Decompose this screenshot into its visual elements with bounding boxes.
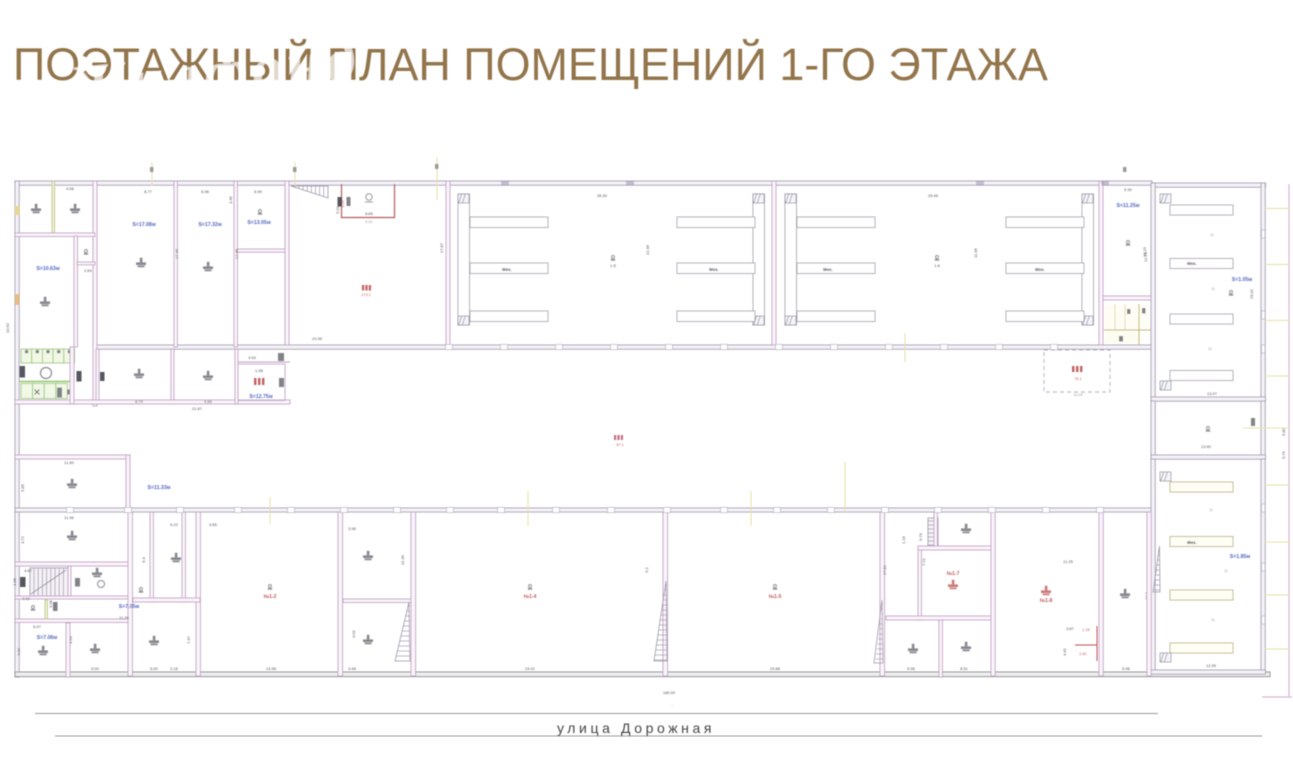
svg-text:4.58: 4.58	[66, 186, 75, 191]
svg-text:2.18: 2.18	[170, 666, 179, 671]
svg-text:23.45: 23.45	[312, 336, 323, 341]
svg-text:9.79: 9.79	[918, 532, 923, 541]
svg-text:S=10.63м: S=10.63м	[36, 266, 59, 272]
svg-text:4.87: 4.87	[24, 568, 33, 573]
svg-text:№1-7: №1-7	[947, 571, 960, 577]
svg-text:6.47: 6.47	[33, 624, 42, 629]
svg-text:13.90: 13.90	[1201, 444, 1212, 449]
svg-text:S=1.05м: S=1.05м	[1232, 277, 1253, 283]
svg-text:180.00: 180.00	[663, 690, 676, 695]
svg-text:11: 11	[1211, 287, 1215, 291]
svg-text:2.81: 2.81	[1079, 652, 1086, 656]
svg-text:10.52: 10.52	[5, 322, 10, 333]
svg-text:S=13.05м: S=13.05м	[247, 220, 270, 226]
svg-text:Мех.: Мех.	[502, 267, 512, 272]
svg-text:№1-4: №1-4	[524, 594, 537, 600]
svg-text:11: 11	[1208, 347, 1212, 351]
svg-text:7.21: 7.21	[921, 557, 926, 566]
svg-text:11: 11	[1209, 508, 1213, 512]
svg-text:12.95: 12.95	[1206, 663, 1217, 668]
svg-text:35.30: 35.30	[597, 193, 608, 198]
svg-text:S=11.33м: S=11.33м	[147, 485, 170, 491]
svg-text:3.45: 3.45	[228, 195, 233, 204]
svg-text:29.88: 29.88	[770, 666, 781, 671]
svg-text:25.46: 25.46	[928, 193, 939, 198]
svg-text:57-1: 57-1	[616, 443, 624, 447]
svg-text:1.98: 1.98	[12, 577, 17, 586]
svg-text:4.53: 4.53	[248, 355, 257, 360]
svg-text:Мех.: Мех.	[1187, 261, 1197, 266]
svg-text:4.72: 4.72	[20, 535, 25, 544]
svg-text:№1-2: №1-2	[264, 594, 277, 600]
svg-text:11.96: 11.96	[64, 515, 74, 520]
svg-text:6.4: 6.4	[141, 556, 146, 562]
svg-text:1-6: 1-6	[934, 263, 941, 268]
svg-text:Мех.: Мех.	[1035, 267, 1045, 272]
svg-text:21.87: 21.87	[192, 406, 203, 411]
svg-text:8.79: 8.79	[135, 399, 144, 404]
svg-text:24.41: 24.41	[525, 666, 536, 671]
svg-text:5.22: 5.22	[170, 522, 179, 527]
svg-text:S=7.06м: S=7.06м	[37, 635, 58, 641]
svg-text:11: 11	[1224, 569, 1228, 573]
svg-text:11.60: 11.60	[64, 460, 74, 465]
svg-text:3.08: 3.08	[48, 599, 53, 608]
svg-text:17.81: 17.81	[882, 564, 887, 575]
svg-text:3.96: 3.96	[348, 526, 357, 531]
svg-text:№1-8: №1-8	[1040, 598, 1053, 604]
svg-text:17.46: 17.46	[174, 248, 179, 259]
svg-text:29.02: 29.02	[1249, 288, 1254, 299]
svg-text:6.75: 6.75	[1281, 450, 1286, 459]
svg-text:13.07: 13.07	[1207, 391, 1218, 396]
svg-text:2.69: 2.69	[84, 268, 93, 273]
svg-text:8.77: 8.77	[144, 189, 153, 194]
svg-text:1.16: 1.16	[901, 535, 906, 544]
svg-text:4.42: 4.42	[1062, 647, 1067, 656]
svg-text:4.01: 4.01	[351, 629, 356, 638]
svg-text:11: 11	[1210, 233, 1214, 237]
svg-text:5.30: 5.30	[1124, 187, 1133, 192]
svg-text:S=7.05м: S=7.05м	[119, 604, 140, 610]
svg-text:75.1: 75.1	[1074, 377, 1081, 381]
svg-text:5.2: 5.2	[644, 566, 649, 572]
svg-text:5.85: 5.85	[1281, 427, 1286, 436]
svg-text:173.1: 173.1	[361, 293, 371, 297]
svg-text:19.15: 19.15	[1142, 246, 1147, 257]
svg-text:S=11.25м: S=11.25м	[1116, 203, 1139, 209]
svg-text:№1-5: №1-5	[769, 594, 782, 600]
svg-text:11: 11	[1211, 618, 1215, 622]
svg-text:6.98: 6.98	[201, 189, 210, 194]
svg-text:S=17.08м: S=17.08м	[132, 222, 155, 228]
svg-text:S=17.32м: S=17.32м	[198, 222, 221, 228]
svg-text:5.85: 5.85	[20, 483, 25, 492]
svg-text:S=1.85м: S=1.85м	[1230, 554, 1251, 560]
svg-text:5.00: 5.00	[91, 666, 100, 671]
svg-text:11.36: 11.36	[400, 554, 405, 564]
svg-text:5.96: 5.96	[907, 666, 916, 671]
svg-text:8.51: 8.51	[960, 666, 969, 671]
svg-text:1-5: 1-5	[610, 263, 617, 268]
svg-text:3.87: 3.87	[1066, 626, 1075, 631]
svg-text:5.01: 5.01	[335, 205, 340, 214]
svg-text:13.05: 13.05	[1073, 393, 1083, 397]
svg-text:7.47: 7.47	[186, 635, 191, 644]
svg-text:Мех.: Мех.	[709, 267, 719, 272]
svg-text:4.00: 4.00	[16, 647, 21, 656]
svg-text:улица Дорожная: улица Дорожная	[557, 720, 715, 736]
svg-text:5.98: 5.98	[1122, 666, 1131, 671]
svg-text:8.89: 8.89	[365, 211, 374, 216]
svg-text:1.98: 1.98	[255, 368, 264, 373]
svg-text:17.46: 17.46	[234, 248, 239, 259]
svg-text:1.25: 1.25	[1082, 628, 1089, 632]
svg-text:2.02: 2.02	[22, 596, 31, 601]
svg-text:17.87: 17.87	[439, 242, 444, 253]
svg-text:Мех.: Мех.	[1187, 540, 1197, 545]
svg-text:11.96: 11.96	[973, 247, 978, 257]
svg-text:11.25: 11.25	[1063, 559, 1073, 564]
svg-text:9.01: 9.01	[365, 220, 372, 224]
svg-text:9.65: 9.65	[209, 522, 218, 527]
svg-text:9.88: 9.88	[204, 399, 213, 404]
svg-text:14.98: 14.98	[266, 666, 277, 671]
svg-text:4.50: 4.50	[68, 635, 73, 644]
svg-text:5.00: 5.00	[150, 666, 159, 671]
svg-text:12.46: 12.46	[645, 244, 650, 255]
svg-text:·: ·	[671, 702, 672, 707]
svg-text:Мех.: Мех.	[823, 267, 833, 272]
svg-text:11.26: 11.26	[119, 615, 129, 620]
svg-text:4.48: 4.48	[348, 666, 357, 671]
svg-text:S=12.75м: S=12.75м	[249, 394, 272, 400]
svg-text:6.95: 6.95	[254, 189, 263, 194]
